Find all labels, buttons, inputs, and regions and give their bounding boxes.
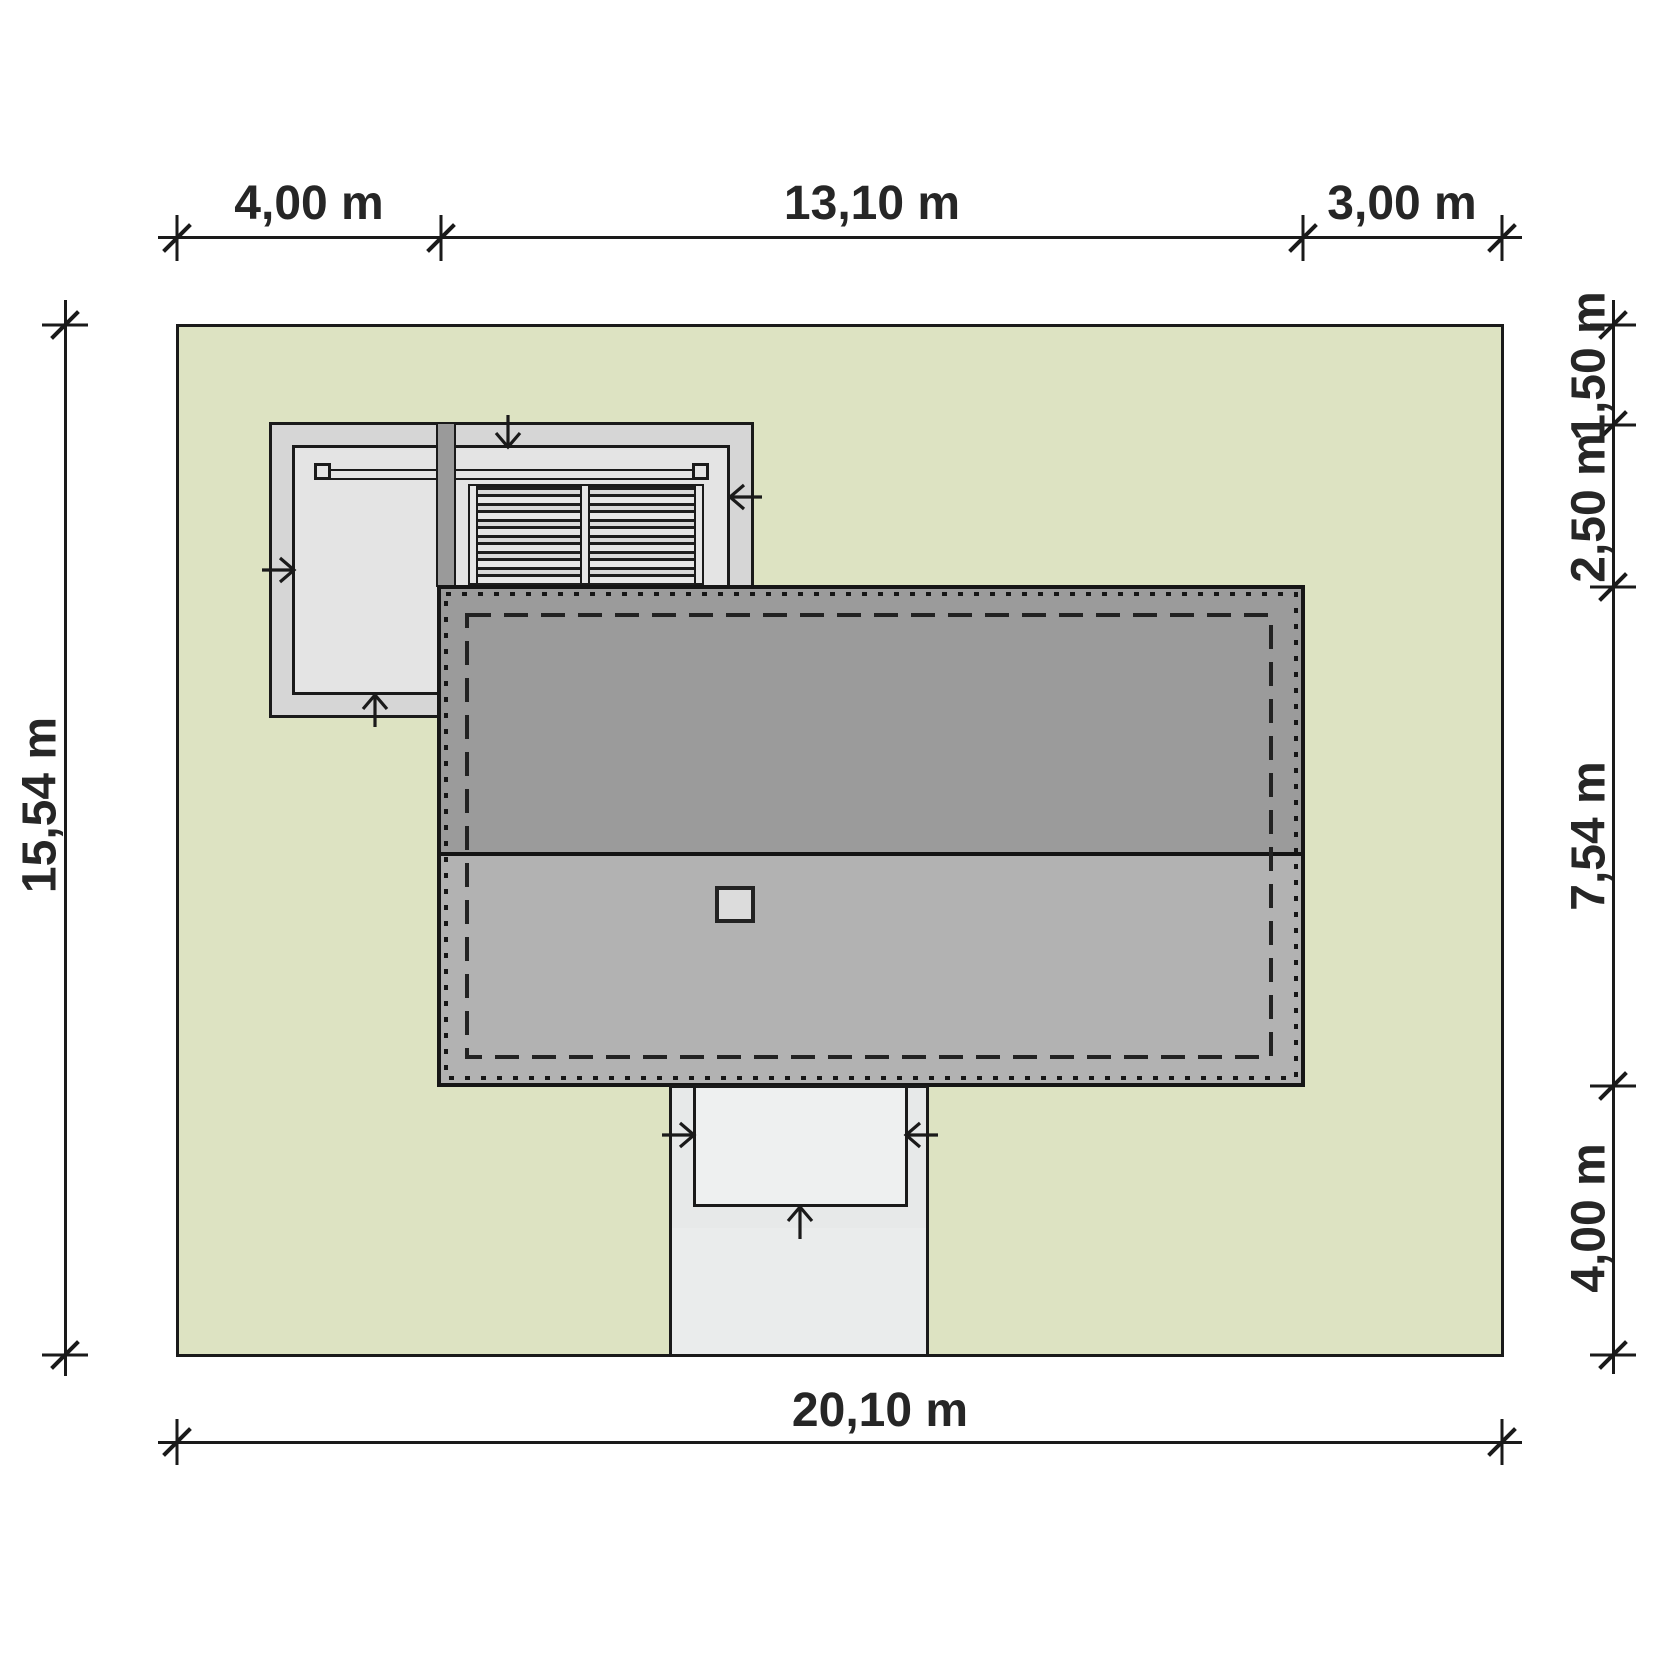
pergola-post xyxy=(580,484,590,585)
pergola-post xyxy=(468,484,478,585)
dim-line-top xyxy=(158,236,1522,239)
pergola-post xyxy=(694,484,704,585)
dim-label-bottom: 20,10 m xyxy=(792,1383,968,1438)
walkway xyxy=(669,1228,929,1356)
pergola-slats-left xyxy=(477,484,581,585)
porch-arrow-right-icon xyxy=(660,1115,700,1155)
porch-arrow-up-icon xyxy=(780,1201,820,1241)
dim-label-top-middle: 13,10 m xyxy=(784,176,960,231)
entrance-arrow-up-icon xyxy=(355,689,395,729)
roof-outline-overlay xyxy=(441,589,1301,1083)
entrance-arrow-left-icon xyxy=(724,477,764,517)
pergola-beam xyxy=(322,469,697,480)
dim-label-right-3: 7,54 m xyxy=(1562,761,1617,910)
roof xyxy=(437,585,1305,1087)
dim-label-right-4: 4,00 m xyxy=(1562,1143,1617,1292)
pergola-beam-end-right xyxy=(692,463,709,480)
dim-label-top-right: 3,00 m xyxy=(1327,176,1476,231)
entrance-arrow-right-icon xyxy=(260,550,300,590)
eaves-dotted-line xyxy=(446,594,1296,1078)
wall-outline-dashed xyxy=(467,615,1271,1057)
dim-line-bottom xyxy=(158,1441,1522,1444)
dim-label-left: 15,54 m xyxy=(13,717,68,893)
chimney xyxy=(715,886,755,923)
dim-label-right-2: 2,50 m xyxy=(1562,433,1617,582)
porch-arrow-left-icon xyxy=(900,1115,940,1155)
pergola-beam-end-left xyxy=(314,463,331,480)
porch-inner xyxy=(693,1085,908,1207)
pergola-slats-right xyxy=(589,484,695,585)
dim-label-top-left: 4,00 m xyxy=(234,176,383,231)
site-plan: 4,00 m 13,10 m 3,00 m 15,54 m 1,50 m 2,5… xyxy=(0,0,1680,1680)
terrace-wall xyxy=(436,422,456,587)
entrance-arrow-down-icon xyxy=(488,413,528,453)
dim-label-right-1: 1,50 m xyxy=(1562,291,1617,440)
